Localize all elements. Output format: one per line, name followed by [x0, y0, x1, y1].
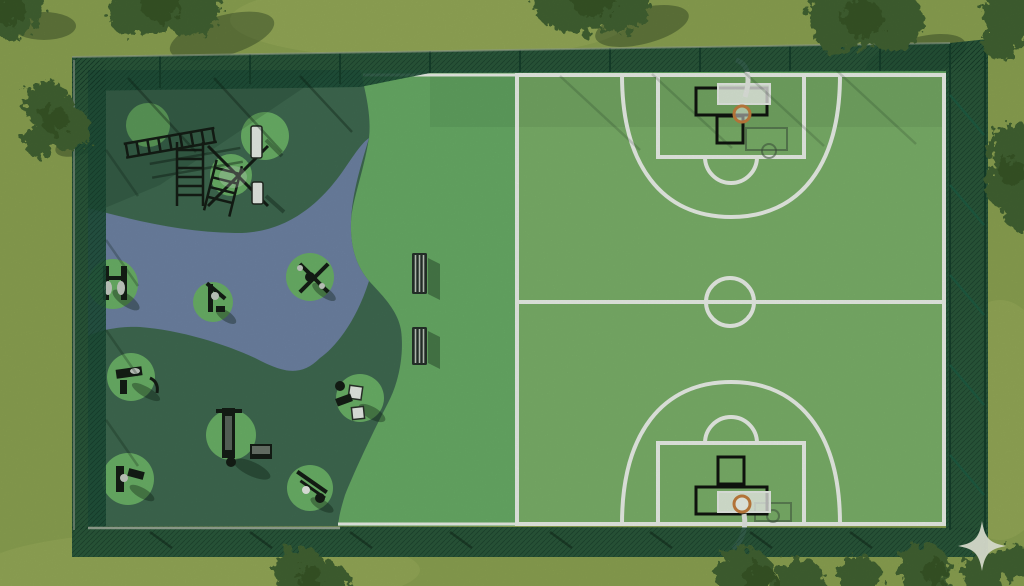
aerial-sports-park-render: [0, 0, 1024, 586]
texture-grain-overlay: [0, 0, 1024, 586]
